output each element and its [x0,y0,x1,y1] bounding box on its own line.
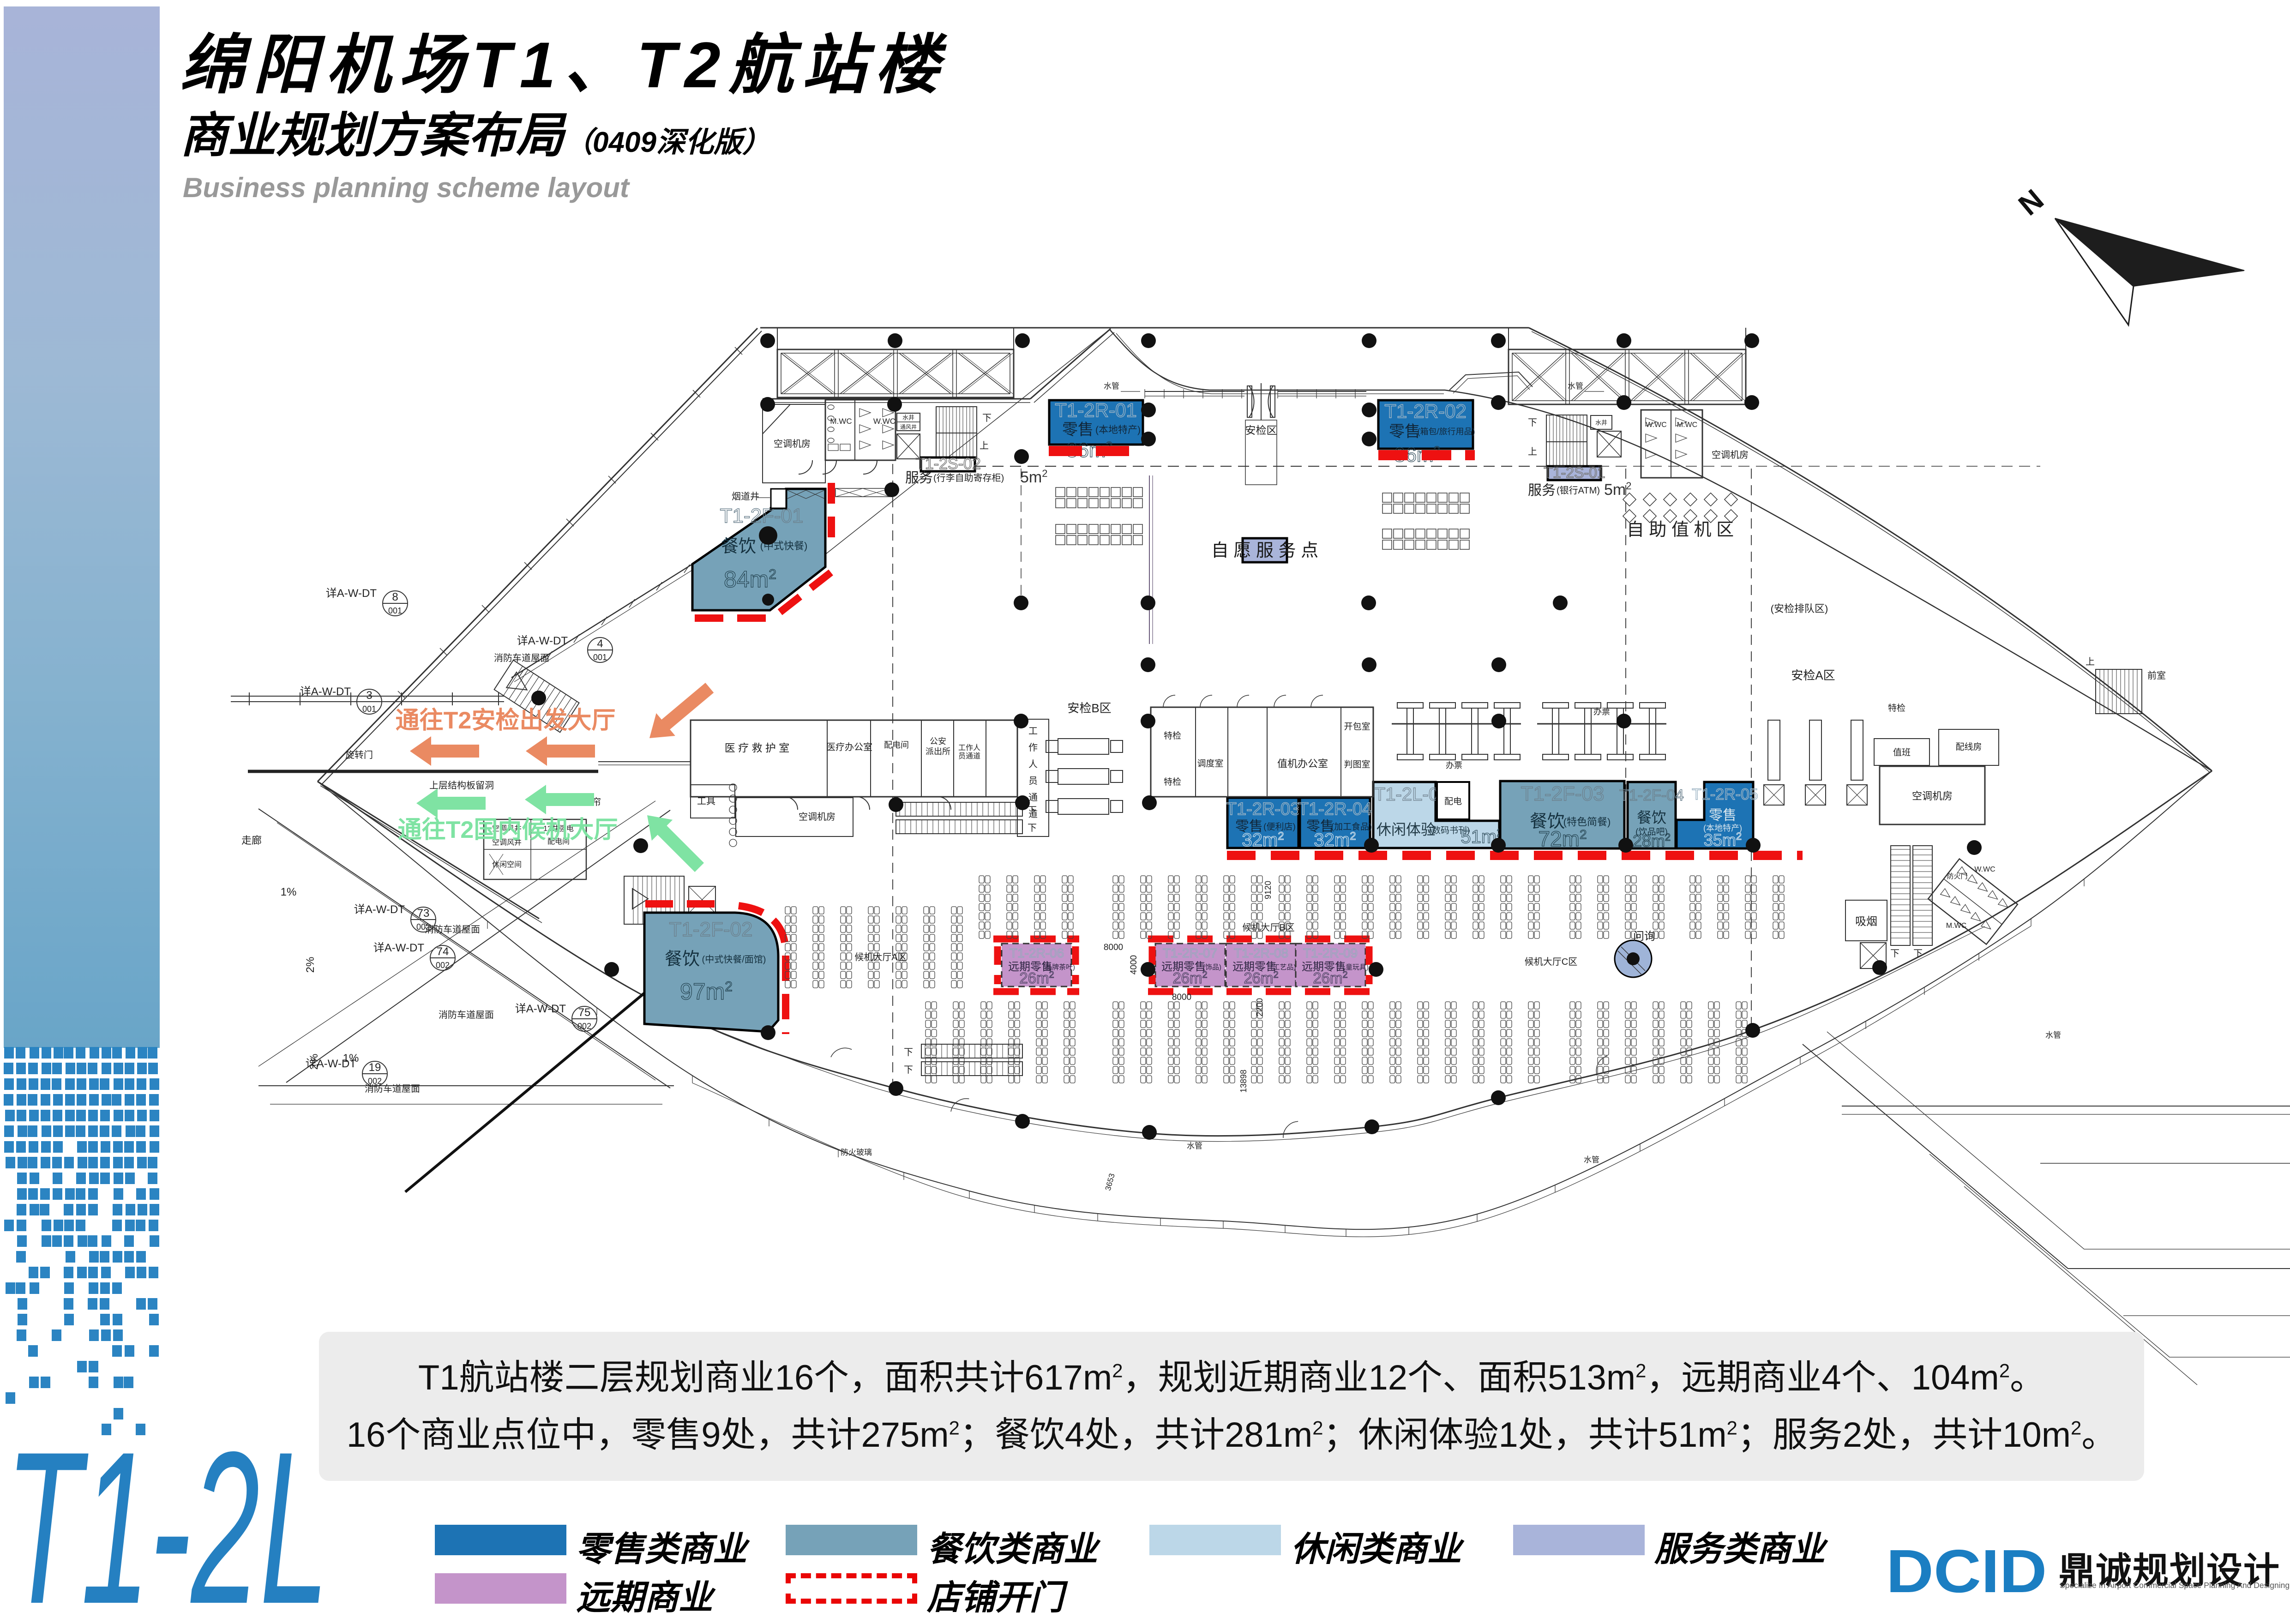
svg-text:烟道井: 烟道井 [732,491,759,502]
svg-text:安检区: 安检区 [1245,424,1277,436]
svg-text:自 助 值 机 区: 自 助 值 机 区 [1627,520,1734,540]
svg-text:N: N [2012,183,2050,222]
svg-text:候机大厅A区: 候机大厅A区 [854,952,907,962]
svg-text:8000: 8000 [1104,943,1123,952]
svg-text:32m2: 32m2 [1314,830,1356,850]
svg-text:消防车道屋面: 消防车道屋面 [494,653,549,663]
svg-text:空调机房: 空调机房 [774,439,811,449]
svg-text:8000: 8000 [1172,992,1191,1002]
svg-text:(安检排队区): (安检排队区) [1771,603,1828,614]
svg-text:配电间: 配电间 [884,740,909,750]
svg-text:3: 3 [366,689,372,702]
svg-text:下: 下 [1028,823,1037,833]
svg-text:84m2: 84m2 [724,566,776,592]
svg-text:值班: 值班 [1893,747,1911,758]
svg-text:(本地特产): (本地特产) [1095,425,1141,435]
svg-text:1%: 1% [343,1052,359,1065]
svg-text:002: 002 [436,961,450,970]
svg-text:水井: 水井 [902,414,914,421]
svg-text:水井: 水井 [1595,419,1607,426]
svg-text:8: 8 [392,591,398,603]
svg-text:办票: 办票 [1446,761,1462,770]
svg-text:97m2: 97m2 [680,979,733,1004]
svg-text:001: 001 [362,704,376,714]
svg-text:特检: 特检 [1164,731,1181,741]
svg-text:(银行ATM): (银行ATM) [1557,485,1600,496]
svg-text:餐饮: 餐饮 [721,537,756,556]
svg-text:判图室: 判图室 [1344,759,1370,770]
svg-text:零售: 零售 [1389,423,1420,440]
svg-text:安检A区: 安检A区 [1791,668,1835,682]
svg-text:下: 下 [1528,418,1537,428]
svg-text:通往T2国内候机大厅: 通往T2国内候机大厅 [398,817,618,843]
svg-text:下: 下 [1028,806,1037,816]
svg-text:人: 人 [1028,759,1038,770]
svg-text:开包室: 开包室 [1344,722,1370,732]
svg-text:候机大厅C区: 候机大厅C区 [1525,956,1577,967]
svg-text:T1-2R-07: T1-2R-07 [1163,946,1217,960]
svg-text:T1-2F-01: T1-2F-01 [720,505,804,527]
svg-text:下: 下 [1890,949,1899,959]
svg-text:零售: 零售 [1709,808,1737,823]
svg-text:(箱包/旅行用品): (箱包/旅行用品) [1418,427,1475,436]
svg-text:19: 19 [369,1061,381,1074]
svg-text:工具: 工具 [697,796,715,806]
svg-text:消防车道屋面: 消防车道屋面 [365,1083,420,1094]
svg-text:医疗办公室: 医疗办公室 [826,742,872,752]
svg-text:72m2: 72m2 [1538,827,1587,851]
svg-text:4: 4 [597,638,603,650]
svg-text:休闲体验: 休闲体验 [1376,821,1436,838]
svg-text:T1-2S-01: T1-2S-01 [1544,464,1605,481]
svg-text:零售: 零售 [1062,421,1094,439]
svg-text:下: 下 [1913,949,1923,959]
svg-text:75: 75 [578,1006,591,1019]
svg-text:吸烟: 吸烟 [1855,915,1877,928]
svg-text:防火门: 防火门 [1947,872,1967,880]
svg-text:2200: 2200 [1255,998,1264,1017]
svg-text:26m2: 26m2 [1313,969,1347,986]
svg-text:002: 002 [577,1022,591,1031]
svg-text:M.WC: M.WC [1677,421,1697,429]
svg-text:通: 通 [1028,792,1038,803]
svg-text:T1-2R-08: T1-2R-08 [1234,946,1288,960]
svg-text:详A-W-DT: 详A-W-DT [515,1003,566,1015]
svg-text:(行李自助寄存柜): (行李自助寄存柜) [933,473,1004,483]
svg-text:32m2: 32m2 [1242,830,1284,850]
svg-text:详A-W-DT: 详A-W-DT [300,686,351,698]
svg-text:26m2: 26m2 [1019,969,1054,986]
svg-text:候机大厅B区: 候机大厅B区 [1242,922,1294,933]
svg-text:作: 作 [1028,742,1038,753]
svg-text:74: 74 [437,945,449,958]
svg-text:(中式快餐/面馆): (中式快餐/面馆) [702,954,766,965]
svg-text:自 愿 服 务 点: 自 愿 服 务 点 [1211,541,1318,560]
svg-text:旋转门: 旋转门 [345,750,373,760]
svg-text:走廊: 走廊 [241,835,262,846]
svg-text:W.WC: W.WC [1646,421,1666,429]
svg-text:001: 001 [388,606,402,615]
svg-text:下: 下 [904,1047,913,1058]
svg-text:前室: 前室 [2147,670,2166,681]
svg-text:T1-2F-03: T1-2F-03 [1521,782,1605,805]
svg-text:下: 下 [904,1065,913,1075]
svg-text:办票: 办票 [1593,707,1610,716]
svg-text:详A-W-DT: 详A-W-DT [326,587,377,600]
svg-text:5m2: 5m2 [1020,468,1047,486]
svg-text:上: 上 [2086,656,2095,667]
svg-text:28m2: 28m2 [1633,831,1671,850]
svg-text:水管: 水管 [1568,382,1583,391]
svg-text:(特色简餐): (特色简餐) [1563,816,1611,828]
svg-text:值机办公室: 值机办公室 [1277,758,1328,770]
svg-text:详A-W-DT: 详A-W-DT [517,635,568,647]
svg-text:T1-2R-04: T1-2R-04 [1298,800,1372,819]
svg-text:下: 下 [982,413,992,423]
svg-text:W.WC: W.WC [1974,866,1995,873]
svg-text:工作人: 工作人 [958,744,980,752]
svg-text:空调机房: 空调机房 [1712,450,1749,460]
svg-text:上: 上 [1528,446,1537,457]
svg-text:W.WC: W.WC [873,417,896,426]
svg-text:通往T2安检出发大厅: 通往T2安检出发大厅 [396,707,616,734]
svg-text:1%: 1% [281,886,297,898]
svg-text:T1-2R-05: T1-2R-05 [1692,786,1758,803]
svg-text:员通道: 员通道 [958,752,980,760]
svg-text:35m2: 35m2 [1704,830,1742,849]
svg-text:3653: 3653 [1104,1173,1117,1191]
svg-text:4000: 4000 [1129,955,1139,974]
svg-text:餐饮: 餐饮 [665,950,700,969]
svg-text:派出所: 派出所 [926,747,950,756]
svg-text:消防车道屋面: 消防车道屋面 [439,1010,494,1020]
svg-text:2%: 2% [304,957,317,973]
svg-text:M.WC: M.WC [1946,922,1966,930]
svg-text:餐饮: 餐饮 [1637,809,1666,826]
svg-text:9120: 9120 [1263,881,1273,899]
svg-text:上层结构板留洞: 上层结构板留洞 [429,780,494,791]
svg-text:T1-2R-09: T1-2R-09 [1303,946,1358,960]
svg-text:26m2: 26m2 [1244,969,1278,986]
svg-text:特检: 特检 [1164,777,1181,787]
svg-text:73: 73 [417,907,430,920]
svg-text:T1-2R-06: T1-2R-06 [1010,946,1064,960]
svg-text:消防车道屋面: 消防车道屋面 [425,924,480,935]
svg-text:防火玻璃: 防火玻璃 [841,1148,872,1157]
svg-text:空调机房: 空调机房 [1912,790,1953,802]
svg-text:服务: 服务 [1528,483,1556,498]
svg-text:水管: 水管 [1104,382,1119,391]
svg-text:T1-2R-03: T1-2R-03 [1226,800,1300,819]
svg-text:水管: 水管 [2045,1031,2061,1040]
svg-text:医 疗 救 护 室: 医 疗 救 护 室 [725,742,790,754]
svg-text:上: 上 [980,440,989,451]
svg-text:T1-2F-04: T1-2F-04 [1619,787,1684,804]
svg-text:2%: 2% [308,1054,320,1070]
svg-text:T1-2F-02: T1-2F-02 [669,918,753,941]
svg-text:工: 工 [1028,726,1038,736]
svg-text:水管: 水管 [1584,1155,1599,1164]
svg-text:详A-W-DT: 详A-W-DT [373,942,425,954]
svg-text:安检B区: 安检B区 [1067,701,1111,715]
svg-text:特检: 特检 [1888,703,1905,713]
svg-text:配线房: 配线房 [1955,742,1982,752]
svg-text:T1-2L: T1-2L [6,1407,329,1623]
svg-text:T1-2R-01: T1-2R-01 [1055,399,1136,421]
svg-text:水管: 水管 [1187,1142,1202,1150]
svg-text:通风井: 通风井 [900,424,917,430]
svg-text:M.WC: M.WC [830,417,852,426]
svg-text:员: 员 [1028,776,1038,786]
svg-text:26m2: 26m2 [1172,969,1207,986]
svg-text:T1-2R-02: T1-2R-02 [1384,400,1466,422]
svg-text:服务: 服务 [905,470,933,486]
svg-text:调度室: 调度室 [1197,758,1223,769]
svg-text:详A-W-DT: 详A-W-DT [354,903,405,916]
svg-text:13898: 13898 [1239,1070,1248,1093]
svg-text:5m2: 5m2 [1604,480,1631,499]
svg-text:空调机房: 空调机房 [799,812,835,822]
svg-text:公安: 公安 [930,737,946,746]
svg-text:001: 001 [593,653,607,662]
svg-text:配电: 配电 [1444,796,1462,806]
